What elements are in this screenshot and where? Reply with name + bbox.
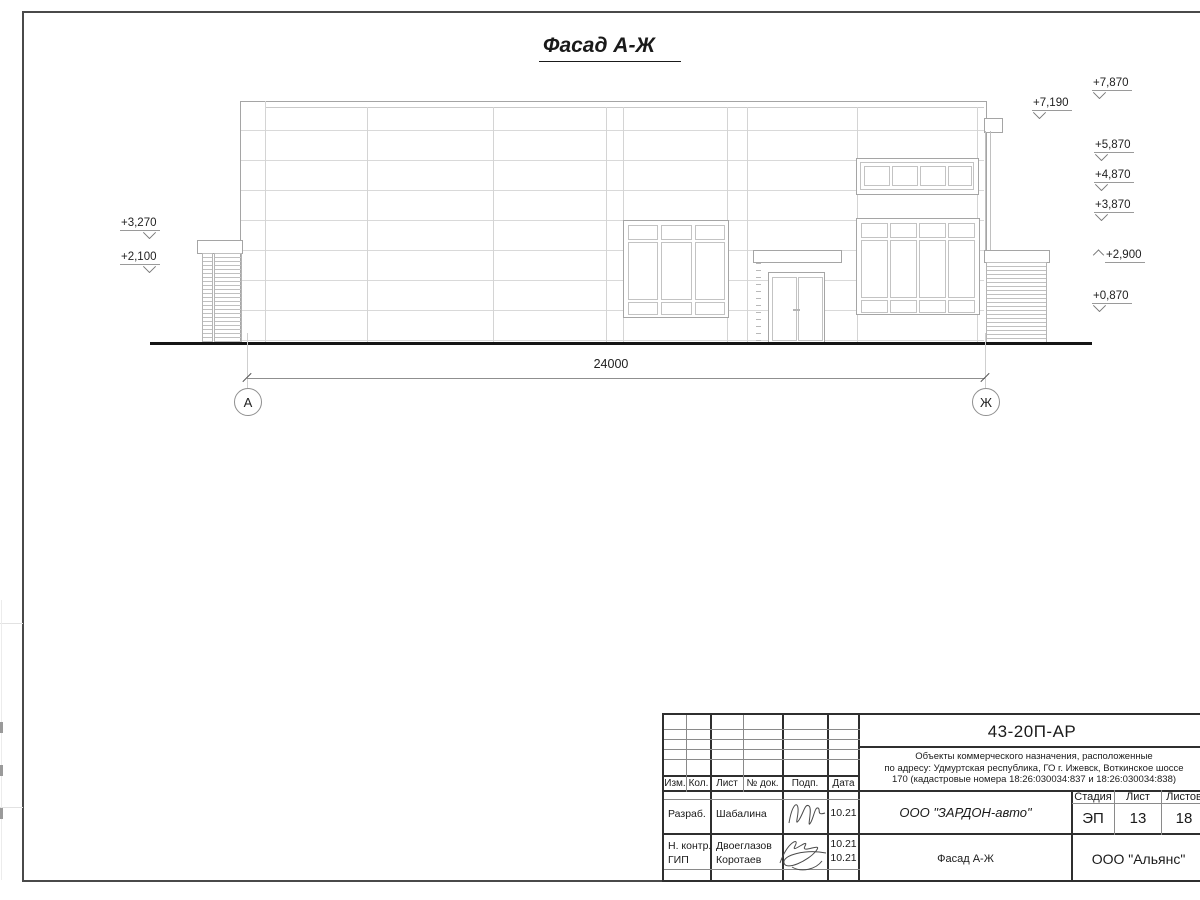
elevation-mark: +5,870 [1094, 139, 1134, 153]
louver-left-narrow [202, 253, 213, 342]
entrance-side-grill [756, 263, 761, 342]
window-pane [890, 240, 917, 298]
elevation-value: +5,870 [1094, 139, 1134, 153]
window-pane [661, 242, 692, 300]
ground-line [150, 342, 1092, 345]
project-desc-line: 170 (кадастровые номера 18:26:030034:837… [858, 774, 1200, 786]
side-stamp-text-fragment [0, 765, 3, 776]
louver-left-cap [197, 240, 243, 254]
stamp-sheets-value: 18 [1162, 805, 1200, 832]
stamp-line [664, 759, 860, 760]
stamp-name: Коротаев [716, 854, 761, 866]
stamp-line [664, 729, 860, 730]
panel-joint [493, 107, 494, 342]
stamp-line [664, 739, 860, 740]
panel-joint [747, 107, 748, 342]
axis-circle-a: А [234, 388, 262, 416]
stamp-project-desc: Объекты коммерческого назначения, распол… [858, 751, 1200, 786]
elevation-value: +3,270 [120, 217, 160, 231]
side-stamp-line [1, 600, 2, 880]
project-desc-line: Объекты коммерческого назначения, распол… [858, 751, 1200, 763]
window-pane [948, 300, 975, 313]
stamp-name: Двоеглазов [716, 840, 772, 852]
elevation-arrow-icon [143, 265, 156, 274]
axis-label: Ж [980, 395, 992, 410]
stamp-role: Н. контр. [668, 840, 711, 852]
stamp-sheets-header: Листов [1162, 791, 1200, 803]
project-desc-line: по адресу: Удмуртская республика, ГО г. … [858, 763, 1200, 775]
window-pane [695, 242, 725, 300]
dimension-label: 24000 [565, 357, 657, 371]
stamp-doc-code: 43-20П-АР [860, 719, 1200, 745]
window-pane [948, 166, 972, 186]
elevation-value: +0,870 [1092, 290, 1132, 304]
axis-line [247, 333, 248, 388]
stamp-col-doc: № док. [743, 777, 782, 790]
stamp-col-data: Дата [828, 777, 859, 790]
drawing-title-text: Фасад А-Ж [539, 34, 681, 62]
elevation-mark: +2,900 [1093, 248, 1145, 263]
elevation-mark: +7,190 [1032, 97, 1072, 111]
panel-joint [265, 101, 266, 342]
entrance-door [768, 272, 825, 344]
elevation-value: +3,870 [1094, 199, 1134, 213]
elevation-mark: +4,870 [1094, 169, 1134, 183]
stamp-sheet-title: Фасад А-Ж [860, 835, 1071, 882]
window-pane [628, 302, 658, 315]
stamp-sheet-header: Лист [1115, 791, 1161, 803]
elevation-arrow-icon [1093, 91, 1106, 100]
window-pane [890, 223, 917, 238]
window-pane [948, 223, 975, 238]
side-stamp-line [0, 807, 23, 808]
window-pane [661, 225, 692, 240]
entrance-canopy [753, 250, 842, 263]
elevation-arrow-icon [1093, 304, 1106, 313]
elevation-mark: +0,870 [1092, 290, 1132, 304]
stamp-name: Шабалина [716, 808, 767, 820]
axis-label: А [244, 395, 253, 410]
window-pane [861, 223, 888, 238]
louver-left-wide [214, 253, 242, 342]
window-pane [919, 240, 946, 298]
stamp-date: 10.21 [828, 806, 859, 820]
elevation-arrow-icon [1033, 111, 1046, 120]
stamp-line [860, 746, 1200, 748]
panel-joint [367, 107, 368, 342]
stamp-col-izm: Изм. [664, 777, 686, 790]
elevation-mark: +3,270 [120, 217, 160, 231]
elevation-value: +7,870 [1092, 77, 1132, 91]
stamp-line [1072, 803, 1200, 804]
window-clerestory [856, 158, 979, 195]
frame-left-line [22, 11, 24, 882]
elevation-arrow-icon [1095, 213, 1108, 222]
side-stamp-text-fragment [0, 722, 3, 733]
window-middle [623, 220, 729, 318]
window-pane [890, 300, 917, 313]
door-handle [793, 309, 800, 311]
elevation-value: +2,100 [120, 251, 160, 265]
window-pane [919, 300, 946, 313]
elevation-value: +2,900 [1105, 249, 1145, 263]
window-pane [695, 302, 725, 315]
window-pane [948, 240, 975, 298]
elevation-arrow-icon [1095, 183, 1108, 192]
louver-right [986, 262, 1047, 342]
signature [783, 795, 828, 835]
elevation-arrow-icon [143, 231, 156, 240]
stamp-stage-value: ЭП [1072, 805, 1114, 832]
signature [772, 833, 836, 881]
panel-joint [606, 107, 607, 342]
stamp-line [664, 749, 860, 750]
elevation-mark: +7,870 [1092, 77, 1132, 91]
window-pane [861, 240, 888, 298]
side-stamp-text-fragment [0, 808, 3, 819]
elevation-arrow-up-icon [1093, 248, 1104, 258]
elevation-value: +7,190 [1032, 97, 1072, 111]
stamp-col-podp: Подп. [783, 777, 827, 790]
dimension-line [247, 378, 985, 379]
stamp-role: ГИП [668, 854, 689, 866]
stamp-sheet-value: 13 [1115, 805, 1161, 832]
window-pane [864, 166, 890, 186]
window-pane [628, 225, 658, 240]
window-pane [919, 223, 946, 238]
frame-top-line [23, 11, 1200, 13]
elevation-mark: +2,100 [120, 251, 160, 265]
drawing-title: Фасад А-Ж [480, 34, 740, 62]
door-leaf [798, 277, 823, 341]
stamp-role: Разраб. [668, 808, 706, 820]
drawing-sheet: { "colors": { "paper": "#ffffff", "frame… [0, 0, 1200, 900]
elevation-value: +4,870 [1094, 169, 1134, 183]
stamp-company: ООО "ЗАРДОН-авто" [860, 795, 1071, 829]
title-block: Изм. Кол. Лист № док. Подп. Дата Разраб.… [662, 713, 1200, 882]
elevation-mark: +3,870 [1094, 199, 1134, 213]
downpipe [985, 131, 991, 250]
side-stamp-line [0, 623, 23, 624]
window-pane [628, 242, 658, 300]
window-pane [861, 300, 888, 313]
window-frame [860, 162, 974, 190]
stamp-org: ООО "Альянс" [1073, 835, 1200, 882]
axis-circle-zh: Ж [972, 388, 1000, 416]
stamp-stage-header: Стадия [1072, 791, 1114, 803]
window-right [856, 218, 980, 315]
window-pane [695, 225, 725, 240]
window-pane [661, 302, 692, 315]
window-pane [892, 166, 918, 186]
stamp-line [664, 799, 860, 800]
stamp-col-list: Лист [711, 777, 743, 790]
axis-line [985, 333, 986, 388]
window-pane [920, 166, 946, 186]
parapet-inner-line [265, 107, 984, 108]
stamp-col-kol: Кол. [686, 777, 711, 790]
elevation-arrow-icon [1095, 153, 1108, 162]
